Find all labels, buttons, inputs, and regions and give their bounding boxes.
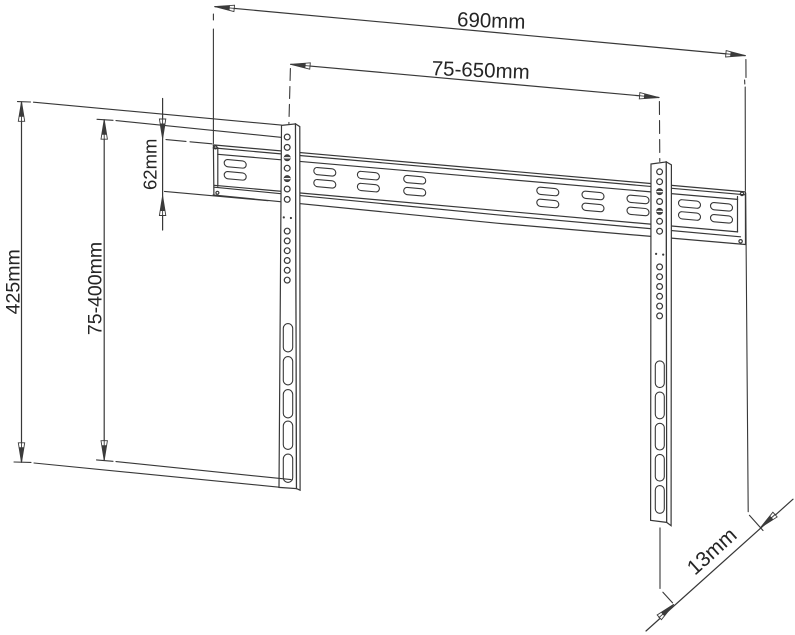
- svg-text:425mm: 425mm: [3, 249, 25, 314]
- svg-text:75-400mm: 75-400mm: [85, 242, 107, 335]
- svg-text:75-650mm: 75-650mm: [431, 57, 530, 84]
- svg-text:62mm: 62mm: [140, 139, 161, 190]
- svg-text:690mm: 690mm: [457, 8, 526, 33]
